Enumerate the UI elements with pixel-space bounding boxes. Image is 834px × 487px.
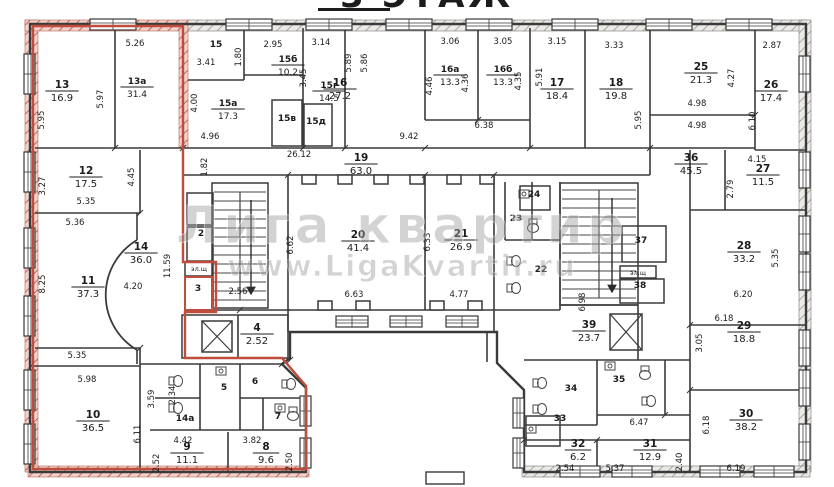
dimension-label: 6.98 — [578, 293, 588, 312]
room-area-25: 21.3 — [690, 75, 712, 86]
room-label-number-15б: 15б — [279, 54, 298, 65]
room-label-number-32: 32 — [571, 438, 586, 450]
dimension-label: 5.89 — [344, 54, 354, 73]
room-label-number-26: 26 — [764, 79, 779, 91]
room-label-number-17: 17 — [550, 77, 565, 89]
dimension-label: 3.27 — [38, 177, 48, 196]
dimension-label: 3.59 — [147, 390, 157, 409]
dimension-label: 9.42 — [400, 132, 419, 142]
room-label-number-36: 36 — [684, 152, 699, 164]
dimension-label: 2.40 — [675, 453, 685, 472]
dimension-label: 6.38 — [475, 121, 494, 131]
dimension-label: 5.95 — [634, 111, 644, 130]
dimension-label: 6.63 — [345, 290, 364, 300]
room-area-17: 18.4 — [546, 91, 568, 102]
room-area-15а: 17.3 — [218, 112, 238, 122]
dimension-label: 4.46 — [425, 77, 435, 96]
floor-title-word: ЭТАЖ — [382, 0, 514, 16]
room-label-number-38: 38 — [634, 281, 647, 291]
room-label-number-7: 7 — [275, 412, 281, 422]
room-label-number-16а: 16а — [441, 65, 460, 75]
room-label-number-10: 10 — [86, 409, 101, 421]
room-area-14: 36.0 — [130, 255, 152, 266]
dimension-label: 3.82 — [243, 436, 262, 446]
room-label-number-25: 25 — [694, 61, 709, 73]
electrical-label-1: эл.щ — [191, 265, 207, 273]
dimension-label: 2.87 — [763, 41, 782, 51]
dimension-label: 4.96 — [201, 132, 220, 142]
room-area-30: 38.2 — [735, 422, 757, 433]
dimension-label: 26.12 — [287, 150, 311, 160]
dimension-label: 4.20 — [124, 282, 143, 292]
dimension-label: 11.59 — [163, 254, 173, 278]
floor-title: 3 ЭТАЖ — [318, 0, 514, 16]
dimension-label: 8.25 — [38, 275, 48, 294]
room-area-16а: 13.3 — [440, 78, 460, 88]
dimension-label: 6.19 — [727, 464, 746, 474]
dimension-label: 1.82 — [200, 158, 210, 177]
dimension-label: 3.14 — [312, 38, 331, 48]
dimension-label: 4.98 — [688, 99, 707, 109]
room-label-number-16б: 16б — [494, 64, 513, 75]
dimension-label: 2.56 — [229, 287, 248, 297]
room-label-number-34: 34 — [565, 384, 578, 394]
room-label-number-39: 39 — [582, 319, 597, 331]
room-area-26: 17.4 — [760, 93, 782, 104]
room-area-9: 11.1 — [176, 455, 198, 466]
room-area-29: 18.8 — [733, 334, 755, 345]
room-label-number-5: 5 — [221, 383, 227, 393]
room-label-number-35: 35 — [613, 375, 626, 385]
dimension-label: 4.42 — [174, 436, 193, 446]
floor-title-underline — [318, 8, 390, 11]
dimension-label: 3.45 — [299, 69, 309, 88]
room-area-36: 45.5 — [680, 166, 702, 177]
dimension-label: 5.35 — [77, 197, 96, 207]
entrance-stub — [426, 472, 464, 484]
room-label-number-11: 11 — [81, 275, 96, 287]
room-area-4: 2.52 — [246, 336, 268, 347]
room-area-28: 33.2 — [733, 254, 755, 265]
dimension-label: 5.35 — [771, 249, 781, 268]
pilaster — [356, 301, 370, 310]
room-area-12: 17.5 — [75, 179, 97, 190]
watermark-url: www.LigaKvartir.ru — [227, 249, 576, 283]
toilet-fixture — [533, 404, 547, 415]
dimension-label: 3.05 — [494, 37, 513, 47]
dimension-label: 4.35 — [514, 72, 524, 91]
toilet-fixture — [169, 376, 183, 387]
room-area-10: 36.5 — [82, 423, 104, 434]
dimension-label: 6.18 — [702, 416, 712, 435]
toilet-fixture — [642, 396, 656, 407]
dimension-label: 5.35 — [68, 351, 87, 361]
toilet-fixture — [282, 379, 296, 390]
room-label-number-16: 16 — [333, 77, 348, 89]
floor-plan-drawing: 1316.913а31.41217.51137.31436.01036.5911… — [0, 0, 834, 487]
toilet-fixture — [288, 407, 299, 421]
room-area-16: 27.2 — [329, 91, 351, 102]
room-label-number-14: 14 — [134, 241, 149, 253]
room-area-11: 37.3 — [77, 289, 99, 300]
dimension-label: 3.33 — [605, 41, 624, 51]
room-label-number-33: 33 — [554, 414, 567, 424]
room-label-number-15а: 15а — [219, 99, 238, 109]
room-label-number-6: 6 — [252, 377, 258, 387]
pilaster — [468, 301, 482, 310]
room-label-number-15д: 15д — [306, 117, 326, 127]
room-label-number-30: 30 — [739, 408, 754, 420]
room-label-number-3: 3 — [195, 284, 201, 294]
dimension-label: 2.95 — [264, 40, 283, 50]
dimension-label: 5.26 — [126, 39, 145, 49]
room-area-13: 16.9 — [51, 93, 73, 104]
room-label-number-37: 37 — [635, 236, 648, 246]
sink-drain — [529, 427, 533, 431]
room-area-27: 11.5 — [752, 177, 774, 188]
room-area-15б: 10.2 — [278, 68, 298, 78]
dimension-label: 4.27 — [727, 69, 737, 88]
pilaster — [410, 175, 424, 184]
pilaster — [374, 175, 388, 184]
dimension-label: 5.86 — [360, 54, 370, 73]
room-label-number-15в: 15в — [278, 114, 297, 124]
dimension-label: 2.52 — [152, 454, 162, 473]
dimension-label: 5.95 — [37, 111, 47, 130]
dimension-label: 5.98 — [78, 375, 97, 385]
dimension-label: 3.15 — [548, 37, 567, 47]
room-label-number-8: 8 — [262, 441, 269, 453]
dimension-label: 2.34 — [168, 386, 178, 405]
pilaster — [318, 301, 332, 310]
electrical-label-2: эл.щ — [630, 269, 646, 277]
room-area-16б: 13.3 — [493, 78, 513, 88]
dimension-label: 2.50 — [285, 453, 295, 472]
dimension-label: 2.54 — [556, 464, 575, 474]
room-area-19: 63.0 — [350, 166, 372, 177]
watermark-brand: Лига квартир — [176, 196, 628, 256]
pilaster — [430, 301, 444, 310]
toilet-fixture — [533, 378, 547, 389]
dimension-label: 5.91 — [535, 68, 545, 87]
sink-drain — [608, 364, 612, 368]
sink-fixture — [526, 425, 536, 433]
room-area-31: 12.9 — [639, 452, 661, 463]
sink-drain — [219, 369, 223, 373]
room-area-8: 9.6 — [258, 455, 274, 466]
dimension-label: 3.05 — [695, 334, 705, 353]
room-label-number-31: 31 — [643, 438, 658, 450]
toilet-fixture — [640, 366, 651, 380]
room-label-number-14а: 14а — [176, 414, 195, 424]
dimension-label: 3.06 — [441, 37, 460, 47]
dimension-label: 5.37 — [606, 464, 625, 474]
dimension-label: 2.79 — [726, 180, 736, 199]
room-label-number-29: 29 — [737, 320, 752, 332]
dimension-label: 6.11 — [133, 425, 143, 444]
toilet-fixture — [507, 283, 521, 294]
room-label-number-4: 4 — [253, 322, 260, 334]
dimension-label: 5.36 — [66, 218, 85, 228]
room-area-18: 19.8 — [605, 91, 627, 102]
pilaster — [302, 175, 316, 184]
sink-drain — [278, 406, 282, 410]
room-area-32: 6.2 — [570, 452, 586, 463]
dimension-label: 4.36 — [461, 74, 471, 93]
dimension-label: 6.18 — [715, 314, 734, 324]
pilaster — [447, 175, 461, 184]
dimension-label: 3.41 — [197, 58, 216, 68]
watermark: Лига квартир www.LigaKvartir.ru — [176, 196, 628, 283]
room-label-number-12: 12 — [79, 165, 94, 177]
room-label-number-13а: 13а — [128, 77, 147, 87]
dimension-label: 4.00 — [190, 94, 200, 113]
room-label-number-19: 19 — [354, 152, 369, 164]
dimension-label: 4.77 — [450, 290, 469, 300]
dimension-label: 5.97 — [96, 90, 106, 109]
elevator-block-1 — [182, 315, 288, 358]
dimension-label: 4.45 — [127, 168, 137, 187]
dimension-label: 6.10 — [748, 112, 758, 131]
pilaster — [480, 175, 494, 184]
room-label-number-28: 28 — [737, 240, 752, 252]
dimension-label: 4.98 — [688, 121, 707, 131]
dimension-label: 1.80 — [234, 48, 244, 67]
room-label-number-18: 18 — [609, 77, 624, 89]
room-area-13а: 31.4 — [127, 90, 147, 100]
dimension-label: 4.15 — [748, 155, 767, 165]
sink-fixture — [275, 404, 285, 412]
dimension-label: 6.20 — [734, 290, 753, 300]
floor-plan-page: 1316.913а31.41217.51137.31436.01036.5911… — [0, 0, 834, 487]
room-area-39: 23.7 — [578, 333, 600, 344]
sink-fixture — [216, 367, 226, 375]
dimension-label: 6.47 — [630, 418, 649, 428]
room-label-number-13: 13 — [55, 79, 70, 91]
sink-fixture — [605, 362, 615, 370]
room-label-number-15: 15 — [210, 40, 223, 50]
